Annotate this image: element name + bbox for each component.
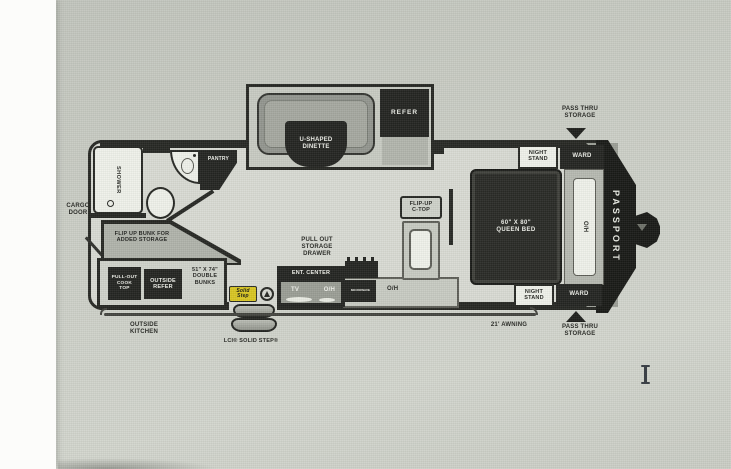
pull-out-cook-top: PULL-OUT COOK TOP xyxy=(108,267,141,300)
bedroom-partition-wall xyxy=(449,189,453,245)
solid-step-badge: Solid Step xyxy=(229,286,257,302)
entry-step-2 xyxy=(231,318,277,332)
ent-oh-label: O/H xyxy=(324,287,335,294)
pass-thru-top-arrow-icon xyxy=(566,128,586,139)
flip-up-ctop-label: FLIP-UP C-TOP xyxy=(410,202,433,214)
cook-top-label: PULL-OUT COOK TOP xyxy=(112,275,138,292)
storage-drawer-label: PULL OUT STORAGE DRAWER xyxy=(290,237,344,258)
shower-label: SHOWER xyxy=(115,166,121,194)
bed-overhead-door: O/H xyxy=(573,178,596,276)
night-stand-bottom: NIGHT STAND xyxy=(514,284,554,307)
outside-refer: OUTSIDE REFER xyxy=(144,269,182,299)
pass-thru-top-label: PASS THRU STORAGE xyxy=(546,106,614,120)
dinette-label: U-SHAPED DINETTE xyxy=(300,137,333,151)
bath-wall-block xyxy=(143,141,170,153)
tv-label: TV xyxy=(291,287,299,294)
shower-drain-icon xyxy=(107,200,114,207)
slide-end-wall-stub xyxy=(434,140,444,154)
range-cooktop xyxy=(345,261,378,278)
flip-up-ctop-tag: FLIP-UP C-TOP xyxy=(400,196,442,219)
night-stand-top-label: NIGHT STAND xyxy=(528,151,548,163)
slide-counter xyxy=(382,137,428,165)
microwave-label: MICROWAVE xyxy=(351,289,370,293)
kitchen-sink xyxy=(409,229,432,270)
solid-step-label: LCI® SOLID STEP® xyxy=(214,338,288,344)
entry-step-1 xyxy=(233,304,275,318)
outside-refer-label: OUTSIDE REFER xyxy=(150,278,176,291)
photo-shadow-edge xyxy=(58,458,218,469)
outside-kitchen-bay: PULL-OUT COOK TOP OUTSIDE REFER 51" X 74… xyxy=(97,258,227,308)
tv-shelf: TV O/H xyxy=(281,282,341,303)
toilet xyxy=(146,187,175,219)
range-knobs-icon xyxy=(347,257,376,261)
pass-thru-bottom-label: PASS THRU STORAGE xyxy=(546,324,614,338)
outside-kitchen-label: OUTSIDE KITCHEN xyxy=(116,322,172,336)
brand-label: PASSPORT xyxy=(611,190,621,263)
pantry-label: PANTRY xyxy=(200,157,237,163)
refer-label: REFER xyxy=(391,109,418,117)
dinette-slideout: U-SHAPED DINETTE REFER xyxy=(246,84,434,170)
double-bunks-label: 51" X 74" DOUBLE BUNKS xyxy=(184,267,226,286)
shelf-arc xyxy=(319,298,335,302)
floorplan: PASSPORT U-SHAPED DINETTE REFER SHOWER xyxy=(0,0,731,469)
bed-overhead-cabinet: O/H xyxy=(564,169,604,285)
cargo-door-label: CARGO DOOR xyxy=(52,203,104,217)
ward-bottom-label: WARD xyxy=(569,291,588,298)
sink-basin xyxy=(181,158,194,174)
pass-thru-bottom-arrow-icon xyxy=(566,311,586,322)
kitchen-peninsula xyxy=(402,221,440,280)
dinette-table: U-SHAPED DINETTE xyxy=(285,121,347,167)
counter-oh-label: O/H xyxy=(387,286,398,293)
faucet-icon xyxy=(193,154,196,157)
tv-stand-arc xyxy=(286,297,312,302)
step-safety-glyph xyxy=(264,291,270,297)
solid-step-logo-text: Solid Step xyxy=(236,289,249,299)
awning-rail-line xyxy=(104,313,536,316)
awning-rail-hook-left xyxy=(100,308,107,315)
awning-label: 21' AWNING xyxy=(478,322,540,329)
queen-bed-label: 60" X 80" QUEEN BED xyxy=(496,220,535,234)
microwave: MICROWAVE xyxy=(345,280,376,302)
hitch-coupler-icon xyxy=(637,224,647,231)
entertainment-center: ENT. CENTER TV O/H xyxy=(277,266,345,307)
screen-photo: PASSPORT U-SHAPED DINETTE REFER SHOWER xyxy=(0,0,731,469)
night-stand-top: NIGHT STAND xyxy=(518,145,558,169)
ent-center-label: ENT. CENTER xyxy=(277,270,345,276)
step-safety-icon xyxy=(260,287,274,301)
ward-top-label: WARD xyxy=(572,153,591,160)
refrigerator: REFER xyxy=(380,89,429,137)
wardrobe-top: WARD xyxy=(560,145,604,169)
flip-up-bunk-label: FLIP UP BUNK FOR ADDED STORAGE xyxy=(100,231,184,244)
bed-oh-label: O/H xyxy=(581,221,588,232)
wardrobe-bottom: WARD xyxy=(556,284,602,306)
text-ibeam-cursor xyxy=(640,365,651,384)
night-stand-bottom-label: NIGHT STAND xyxy=(524,290,544,302)
queen-bed: 60" X 80" QUEEN BED xyxy=(470,169,562,285)
